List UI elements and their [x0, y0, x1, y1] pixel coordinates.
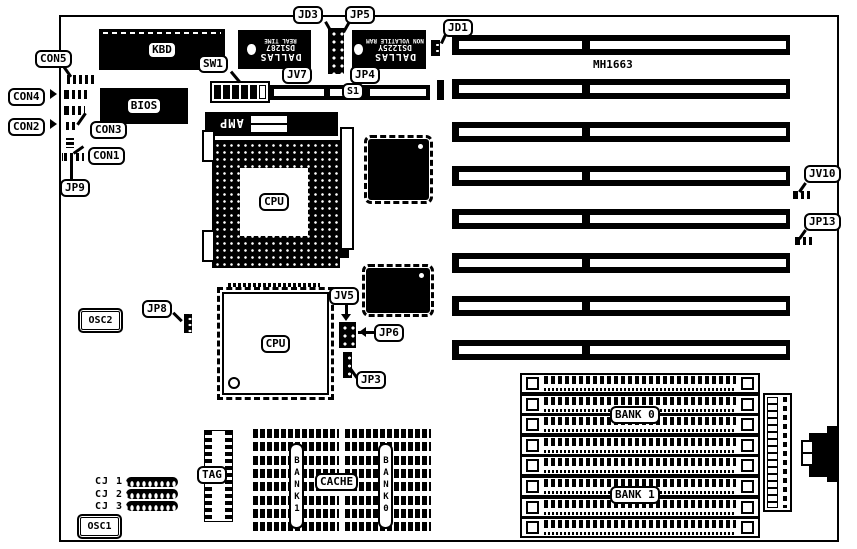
jd1-jumper — [431, 40, 440, 56]
jv10-label: JV10 — [804, 165, 841, 183]
con4-header — [64, 90, 90, 99]
jd1-label: JD1 — [443, 19, 473, 37]
tag-label: TAG — [197, 466, 227, 484]
simm-contacts — [544, 458, 736, 466]
rtc-brand: DALLAS — [259, 52, 301, 62]
simm-latch — [526, 377, 539, 390]
cpu-socket-label: CPU — [259, 193, 289, 211]
jp5-label: JP5 — [345, 6, 375, 24]
simm-socket-5 — [520, 455, 760, 476]
osc2-oscillator: OSC2 — [78, 308, 123, 333]
power-connector-pins — [767, 397, 778, 508]
isa-slot-7 — [452, 296, 790, 316]
rtc-desc: REAL TIME — [264, 38, 297, 44]
isa-slot-5 — [452, 209, 790, 229]
asic-chip-2 — [366, 268, 430, 313]
cache-bank0-label: BANK0 — [378, 443, 393, 529]
isa-slot-2 — [452, 79, 790, 99]
socket-tab-bottom — [202, 230, 215, 262]
con4-pointer — [50, 89, 62, 99]
slot-key — [590, 259, 786, 267]
slot-key — [590, 85, 786, 93]
jd3-label: JD3 — [293, 6, 323, 24]
cache-label: CACHE — [315, 473, 358, 491]
jp8-label: JP8 — [142, 300, 172, 318]
pin1-dot — [419, 273, 424, 278]
con2-header — [64, 122, 75, 130]
simm-latch — [741, 439, 754, 452]
simm-contacts — [544, 520, 736, 528]
simm-contacts — [544, 429, 736, 432]
cj3-label: CJ 3 — [95, 501, 123, 512]
slot-key — [459, 128, 582, 136]
bios-chip: BIOS — [100, 88, 188, 124]
amp-window — [251, 116, 287, 123]
s1-label: S1 — [342, 83, 364, 100]
socket-lever-foot — [340, 248, 349, 258]
jp4-label: JP4 — [350, 66, 380, 84]
power-connector-keys — [783, 397, 787, 508]
simm-latch — [526, 418, 539, 431]
simm-latch — [526, 459, 539, 472]
con1-header — [66, 138, 74, 148]
simm-contacts — [544, 397, 736, 405]
cj1-label: CJ 1 — [95, 476, 123, 487]
jv5-pointer — [341, 314, 351, 326]
pad-row — [228, 283, 320, 287]
nvram-desc: NON VOLATILE RAM — [366, 38, 424, 44]
dallas-bug-logo — [354, 44, 363, 55]
isa-slot-1 — [452, 35, 790, 55]
din-pin-block — [801, 452, 814, 466]
small-component — [437, 80, 444, 100]
jp3-label: JP3 — [356, 371, 386, 389]
isa-slot-8 — [452, 340, 790, 360]
con3-label: CON3 — [90, 121, 127, 139]
con1-label: CON1 — [88, 147, 125, 165]
simm-latch — [526, 501, 539, 514]
simm-latch — [741, 459, 754, 472]
amp-brand-text: AMP — [219, 116, 244, 130]
jp13-label: JP13 — [804, 213, 841, 231]
kbd-chip-notch — [103, 32, 221, 34]
slot-key — [590, 41, 786, 49]
jv10-jumper — [793, 191, 813, 199]
socket-tab-top — [202, 130, 215, 162]
osc1-oscillator: OSC1 — [77, 514, 122, 539]
cpu-qfp-label: CPU — [261, 335, 291, 353]
simm-contacts — [544, 450, 736, 453]
dallas-nvram-chip: DALLAS DS1225Y NON VOLATILE RAM — [352, 30, 426, 69]
s1-segment — [370, 89, 426, 96]
jp6-pointer — [354, 327, 366, 337]
power-connector — [763, 393, 792, 512]
isa-slot-3 — [452, 122, 790, 142]
con4-label: CON4 — [8, 88, 45, 106]
isa-slot-4 — [452, 166, 790, 186]
simm-contacts — [544, 532, 736, 535]
board-model-text: MH1663 — [593, 58, 633, 71]
slot-key — [459, 172, 582, 180]
simm-socket-8 — [520, 517, 760, 538]
amp-window — [251, 125, 287, 132]
simm-contacts — [544, 470, 736, 473]
simm-latch — [526, 439, 539, 452]
simm-latch — [741, 521, 754, 534]
sw1-dip-switch — [210, 81, 270, 103]
simm-latch — [741, 398, 754, 411]
simm-socket-1 — [520, 373, 760, 394]
jp3-jumper — [343, 352, 352, 378]
slot-key — [459, 85, 582, 93]
simm-latch — [526, 480, 539, 493]
slot-key — [590, 128, 786, 136]
motherboard-diagram: KBD BIOS CON5 CON4 CON2 CON3 CON1 JP9 SW… — [0, 0, 857, 549]
simm-bank0-label: BANK 0 — [610, 406, 660, 424]
slot-key — [459, 259, 582, 267]
cj1-header — [126, 477, 178, 487]
dallas-rtc-chip: DALLAS DS1287 REAL TIME — [238, 30, 311, 69]
simm-socket-4 — [520, 435, 760, 456]
cj3-header — [126, 501, 178, 511]
amp-socket-frame: AMP — [205, 112, 338, 136]
simm-latch — [741, 418, 754, 431]
simm-latch — [741, 377, 754, 390]
cache-chip-row — [345, 429, 431, 438]
simm-contacts — [544, 376, 736, 384]
simm-latch — [526, 521, 539, 534]
con2-pointer — [50, 119, 62, 129]
jp9-label: JP9 — [60, 179, 90, 197]
cpu-socket-center: CPU — [240, 168, 308, 236]
pin1-dot — [418, 144, 423, 149]
simm-latch — [526, 398, 539, 411]
jp6-label: JP6 — [374, 324, 404, 342]
nvram-part: DS1225Y — [378, 44, 412, 52]
isa-slot-6 — [452, 253, 790, 273]
jv7-label: JV7 — [282, 66, 312, 84]
con2-label: CON2 — [8, 118, 45, 136]
kbd-label: KBD — [147, 41, 177, 59]
slot-key — [459, 215, 582, 223]
simm-latch — [741, 480, 754, 493]
socket-lever — [340, 127, 354, 250]
simm-contacts — [544, 438, 736, 446]
cpu-qfp-chip: CPU — [222, 292, 329, 395]
asic-chip-1 — [368, 139, 429, 200]
pin1-dot — [228, 377, 240, 389]
con5-label: CON5 — [35, 50, 72, 68]
jd3-jp5-jv7-jp4-jumper-strip — [328, 28, 344, 74]
cj2-header — [126, 489, 178, 499]
simm-contacts — [544, 388, 736, 391]
dallas-bug-logo — [247, 44, 256, 55]
slot-key — [459, 41, 582, 49]
jp9-leader — [70, 161, 73, 179]
slot-key — [459, 302, 582, 310]
simm-bank1-label: BANK 1 — [610, 486, 660, 504]
simm-latch — [741, 501, 754, 514]
slot-key — [590, 215, 786, 223]
cj2-label: CJ 2 — [95, 489, 123, 500]
slot-key — [590, 172, 786, 180]
bios-label: BIOS — [126, 97, 163, 115]
simm-contacts — [544, 512, 736, 515]
cache-chip-row — [253, 429, 339, 438]
sw1-label: SW1 — [198, 55, 228, 73]
s1-segment — [274, 89, 324, 96]
rtc-part: DS1287 — [266, 44, 295, 52]
jv5-label: JV5 — [329, 287, 359, 305]
jp9-header — [62, 153, 84, 161]
slot-key — [459, 346, 582, 354]
slot-key — [590, 302, 786, 310]
nvram-brand: DALLAS — [374, 52, 416, 62]
slot-key — [590, 346, 786, 354]
jp8-jumper — [184, 314, 192, 333]
cache-bank1-label: BANK1 — [289, 443, 304, 529]
